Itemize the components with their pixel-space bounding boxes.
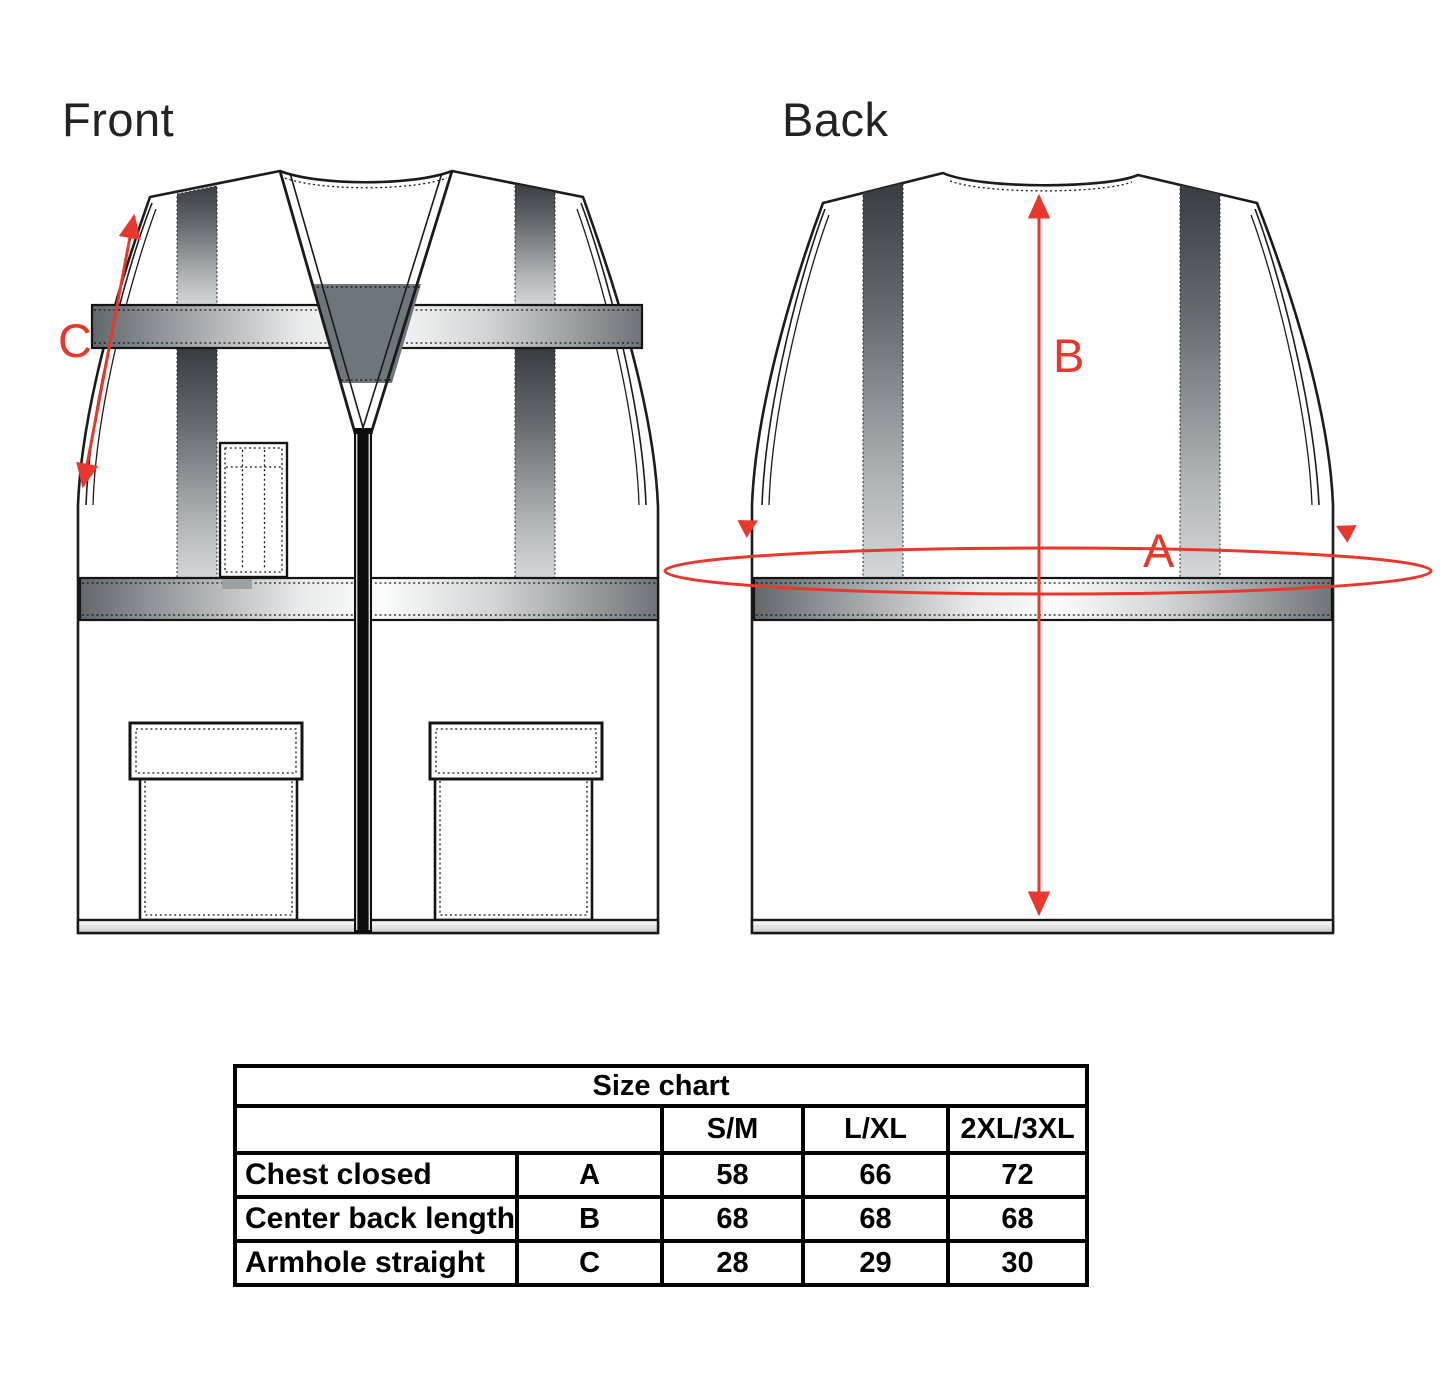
size-col-sm: S/M: [662, 1106, 803, 1153]
row-letter: C: [517, 1241, 662, 1285]
size-chart-title: Size chart: [235, 1066, 1087, 1106]
brand-tag: [222, 579, 252, 589]
chest-measure-arrowhead-right: [1331, 517, 1356, 543]
chest-measure-label: A: [1143, 524, 1175, 577]
front-zipper: [354, 428, 372, 933]
value-cell: 66: [803, 1153, 948, 1197]
value-cell: 68: [662, 1197, 803, 1241]
size-guide-page: Front Back: [0, 0, 1445, 1386]
value-cell: 29: [803, 1241, 948, 1285]
row-label: Center back length: [235, 1197, 517, 1241]
value-cell: 68: [948, 1197, 1087, 1241]
back-waist-band: [754, 578, 1332, 620]
armhole-measure-label: C: [58, 314, 92, 367]
front-right-pocket: [430, 723, 602, 920]
front-pen-pocket: [220, 443, 287, 577]
size-chart-blank-header: [235, 1106, 662, 1153]
row-label: Chest closed: [235, 1153, 517, 1197]
size-chart-table: Size chart S/M L/XL 2XL/3XL Chest closed…: [233, 1064, 1089, 1287]
value-cell: 72: [948, 1153, 1087, 1197]
row-letter: B: [517, 1197, 662, 1241]
row-letter: A: [517, 1153, 662, 1197]
table-row-chest-closed: Chest closed A 58 66 72: [235, 1153, 1087, 1197]
table-row-armhole-straight: Armhole straight C 28 29 30: [235, 1241, 1087, 1285]
value-cell: 58: [662, 1153, 803, 1197]
front-vest-diagram: [78, 171, 658, 933]
size-col-2xl3xl: 2XL/3XL: [948, 1106, 1087, 1153]
size-col-lxl: L/XL: [803, 1106, 948, 1153]
table-row-center-back-length: Center back length B 68 68 68: [235, 1197, 1087, 1241]
row-label: Armhole straight: [235, 1241, 517, 1285]
value-cell: 28: [662, 1241, 803, 1285]
value-cell: 30: [948, 1241, 1087, 1285]
back-hem: [752, 920, 1333, 933]
back-length-measure-label: B: [1053, 329, 1084, 382]
front-left-pocket: [130, 723, 302, 920]
value-cell: 68: [803, 1197, 948, 1241]
